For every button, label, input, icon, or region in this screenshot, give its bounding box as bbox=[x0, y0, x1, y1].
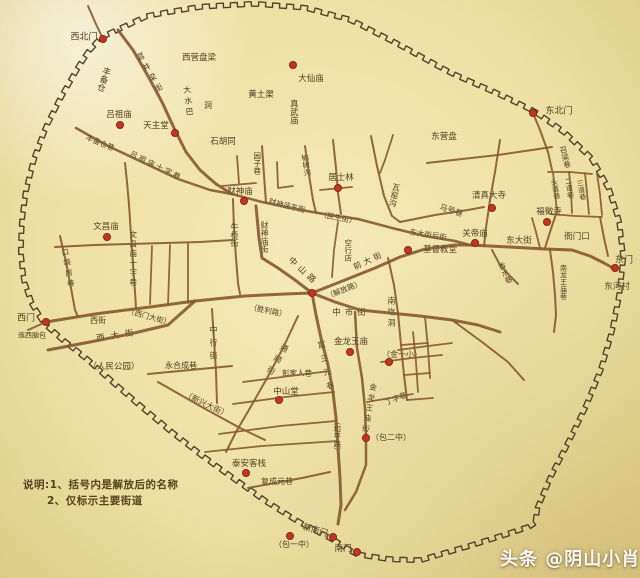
map-label: （金一小） bbox=[382, 351, 422, 359]
poi-dot bbox=[42, 318, 49, 325]
map-label: 东门 bbox=[615, 257, 633, 266]
map-label: 中市街 bbox=[332, 309, 370, 318]
road bbox=[332, 222, 338, 277]
map-label: 关帝庙 bbox=[462, 230, 488, 239]
road bbox=[55, 240, 233, 247]
road bbox=[380, 135, 393, 173]
poi-dot bbox=[543, 218, 550, 225]
map-label: 基督教堂 bbox=[423, 246, 457, 255]
map-label: 居士林 bbox=[328, 174, 354, 183]
poi-dot bbox=[404, 246, 411, 253]
map-label: 南圪洞 bbox=[387, 297, 395, 330]
map-label: （和平路） bbox=[333, 417, 341, 455]
road bbox=[470, 245, 613, 268]
map-label: 永合成巷 bbox=[165, 362, 197, 370]
map-label: 吕祖庙 bbox=[106, 111, 132, 120]
poi-dot bbox=[529, 109, 536, 116]
map-label: 南门 bbox=[334, 545, 351, 554]
road bbox=[413, 332, 418, 392]
map-label: 衙门口 bbox=[564, 233, 590, 242]
road bbox=[550, 250, 556, 332]
map-legend: 说明:1、括号内是解放后的名称 2、仅标示主要街道 bbox=[23, 477, 179, 510]
map-label: 园子巷 bbox=[253, 152, 261, 175]
poi-dot bbox=[471, 239, 478, 246]
map-canvas: 西北门东北门西门迤西脑包东门东河村新南门南门（包一中）吕祖庙天主堂大仙庙西营盘梁… bbox=[0, 0, 640, 578]
map-label: 西门 bbox=[17, 315, 35, 324]
road bbox=[532, 218, 540, 248]
map-label: 黄土渠 bbox=[248, 91, 274, 100]
map-label: 南龙王庙巷 bbox=[560, 265, 567, 300]
map-label: 迤西脑包 bbox=[18, 333, 46, 340]
map-label: 东大街 bbox=[506, 237, 532, 246]
map-label: 洞 bbox=[204, 102, 212, 110]
poi-dot bbox=[353, 548, 360, 555]
legend-line-1: 说明:1、括号内是解放后的名称 bbox=[23, 477, 179, 493]
map-label: 福徵寺 bbox=[536, 208, 562, 217]
poi-dot bbox=[488, 204, 495, 211]
map-label: 彭家人巷 bbox=[282, 369, 312, 377]
poi-dot bbox=[240, 197, 247, 204]
road bbox=[425, 317, 430, 378]
road bbox=[312, 293, 341, 524]
map-label: 金龙王庙 bbox=[334, 338, 368, 347]
map-label: 西营盘梁 bbox=[182, 54, 216, 63]
map-label: 文昌庙 bbox=[93, 223, 119, 232]
map-label: 空行店 bbox=[344, 239, 352, 262]
poi-dot bbox=[329, 533, 336, 540]
road bbox=[407, 398, 433, 400]
road bbox=[427, 147, 552, 163]
road bbox=[205, 441, 338, 452]
poi-dot bbox=[334, 184, 341, 191]
map-label: （包一中） bbox=[274, 541, 314, 549]
map-label: 东北门 bbox=[545, 108, 572, 117]
map-label: 东营盘 bbox=[431, 133, 457, 142]
map-label: 天主堂 bbox=[143, 122, 169, 131]
map-label: 真武庙 bbox=[289, 99, 298, 125]
road bbox=[226, 316, 298, 452]
map-label: 中行街 bbox=[209, 326, 217, 365]
map-label: 西北门 bbox=[70, 34, 97, 43]
road bbox=[600, 217, 608, 256]
watermark-text: 头条 @阴山小肖 bbox=[500, 545, 638, 571]
map-label: 财神庙 bbox=[227, 188, 253, 197]
poi-dot bbox=[103, 233, 110, 240]
poi-dot bbox=[275, 396, 282, 403]
road bbox=[168, 245, 170, 305]
map-label: 财神庙街 bbox=[260, 221, 268, 253]
poi-dot bbox=[346, 348, 353, 355]
map-label: 东河村 bbox=[604, 283, 630, 292]
road bbox=[150, 246, 152, 304]
map-label: 大仙庙 bbox=[298, 75, 324, 84]
road bbox=[237, 156, 239, 183]
map-label: （包二中） bbox=[371, 434, 411, 442]
poi-dot bbox=[289, 61, 296, 68]
map-label: 牛桥街 bbox=[230, 223, 238, 247]
map-label: 石胡同 bbox=[210, 138, 236, 147]
poi-dot bbox=[385, 358, 392, 365]
poi-dot bbox=[242, 469, 249, 476]
poi-dot bbox=[171, 129, 178, 136]
map-label: （人民公园） bbox=[88, 363, 139, 372]
poi-dot bbox=[286, 532, 293, 539]
map-label: 复成元巷 bbox=[261, 478, 293, 486]
poi-dot bbox=[116, 121, 123, 128]
legend-line-2: 2、仅标示主要街道 bbox=[47, 493, 179, 509]
poi-dot bbox=[99, 35, 106, 42]
road bbox=[277, 162, 293, 188]
map-label: 清真大寺 bbox=[472, 192, 506, 201]
road bbox=[533, 113, 552, 170]
map-label: 中山堂 bbox=[273, 388, 299, 397]
road bbox=[262, 146, 266, 203]
map-label: 泰安客栈 bbox=[232, 460, 266, 469]
map-label: 二道巷 bbox=[564, 177, 574, 199]
poi-dot bbox=[308, 289, 315, 296]
road bbox=[597, 174, 602, 215]
map-label: 文昌庙十字巷 bbox=[129, 231, 137, 288]
map-label: 西街 bbox=[90, 317, 106, 325]
road bbox=[371, 136, 400, 222]
